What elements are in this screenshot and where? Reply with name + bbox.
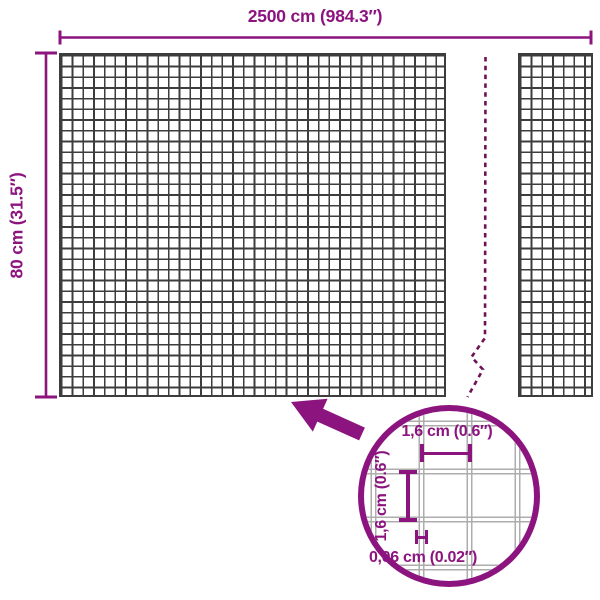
cell-height-dimension-line [406, 472, 410, 520]
break-line-icon [468, 57, 486, 397]
cell-width-dimension-cap-left [420, 444, 424, 462]
cell-height-label: 1,6 cm (0.6″) [373, 431, 391, 561]
product-dimension-diagram: 2500 cm (984.3″) 80 cm (31.5″) 1,6 cm (0… [0, 0, 600, 600]
cell-height-dimension-cap-bottom [399, 518, 417, 522]
height-dimension-line [35, 53, 57, 397]
width-dimension-label: 2500 cm (984.3″) [215, 6, 415, 27]
zoom-callout-arrow-icon [291, 399, 365, 441]
cell-width-dimension-cap-right [468, 444, 472, 462]
cell-width-dimension-line [422, 452, 470, 456]
cell-width-label: 1,6 cm (0.6″) [377, 423, 517, 441]
height-dimension-label: 80 cm (31.5″) [7, 126, 28, 326]
wire-thickness-label: 0,06 cm (0.02″) [353, 549, 493, 567]
width-dimension-line [60, 31, 591, 45]
cell-height-dimension-cap-top [399, 470, 417, 474]
wire-thickness-marker-bar [415, 536, 428, 539]
